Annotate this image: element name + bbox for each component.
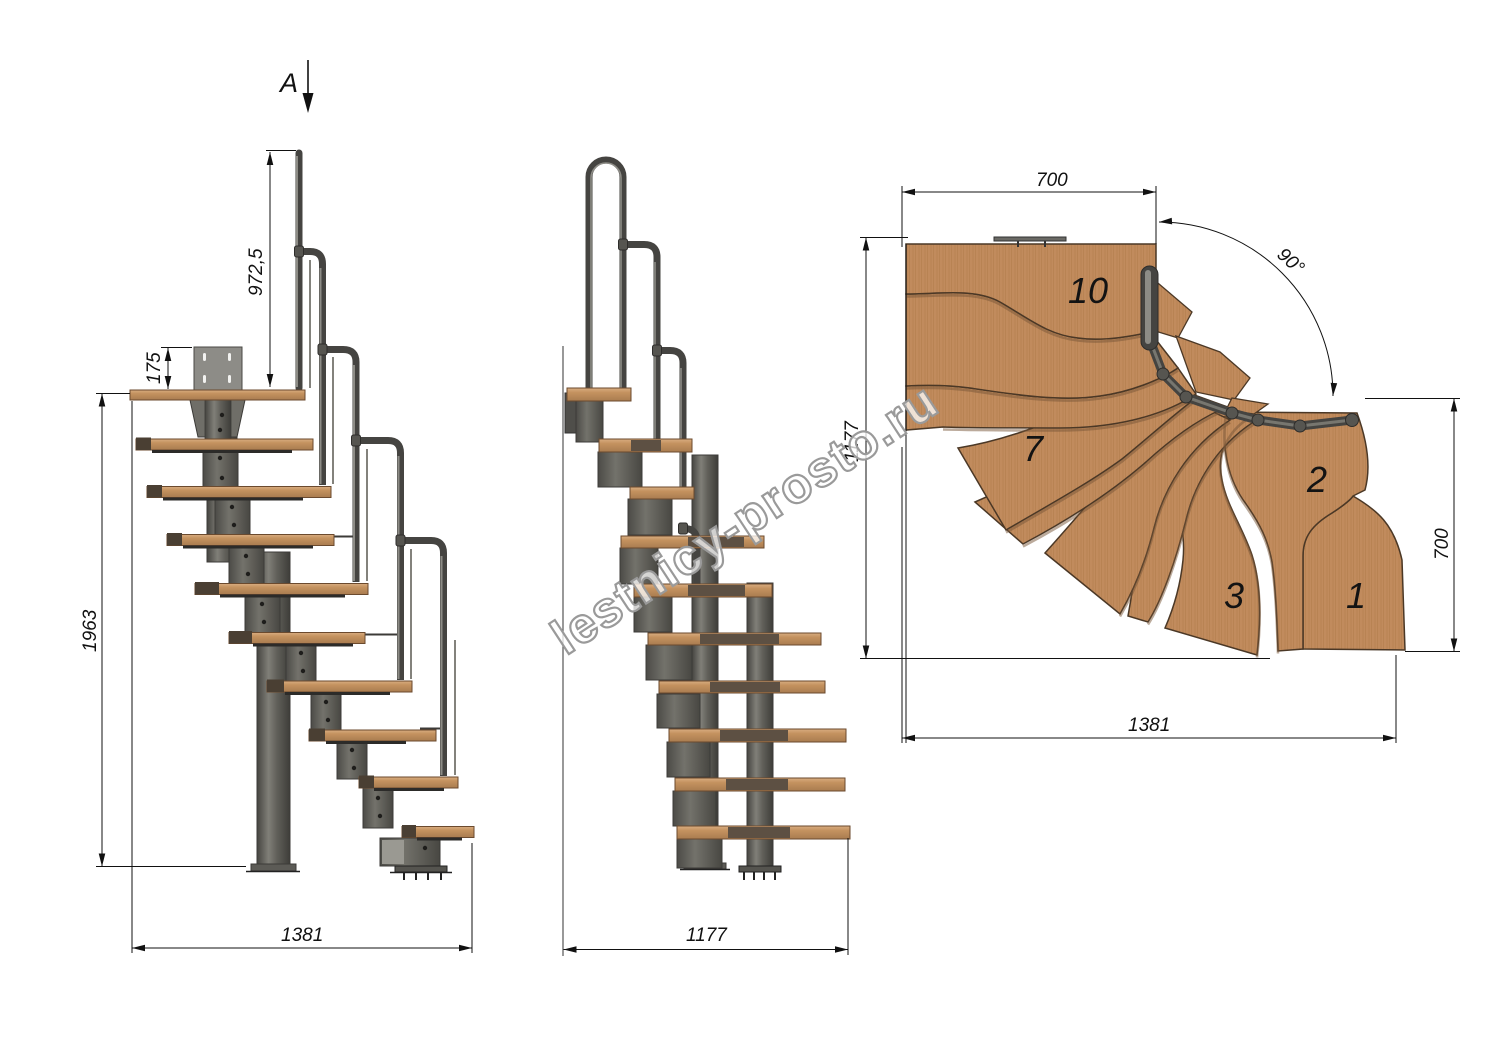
svg-text:1: 1 [1346,575,1366,616]
svg-text:3: 3 [1224,575,1244,616]
svg-text:700: 700 [1432,528,1453,560]
svg-text:700: 700 [1036,170,1068,191]
svg-text:2: 2 [1306,459,1327,500]
svg-text:972,5: 972,5 [246,248,267,296]
svg-text:1963: 1963 [80,609,101,652]
svg-text:175: 175 [144,352,165,384]
svg-text:10: 10 [1068,270,1108,311]
svg-text:A: A [278,68,298,98]
svg-text:7: 7 [1023,428,1045,469]
svg-text:1177: 1177 [686,925,728,946]
svg-text:1381: 1381 [1128,715,1170,736]
svg-text:1381: 1381 [281,925,323,946]
